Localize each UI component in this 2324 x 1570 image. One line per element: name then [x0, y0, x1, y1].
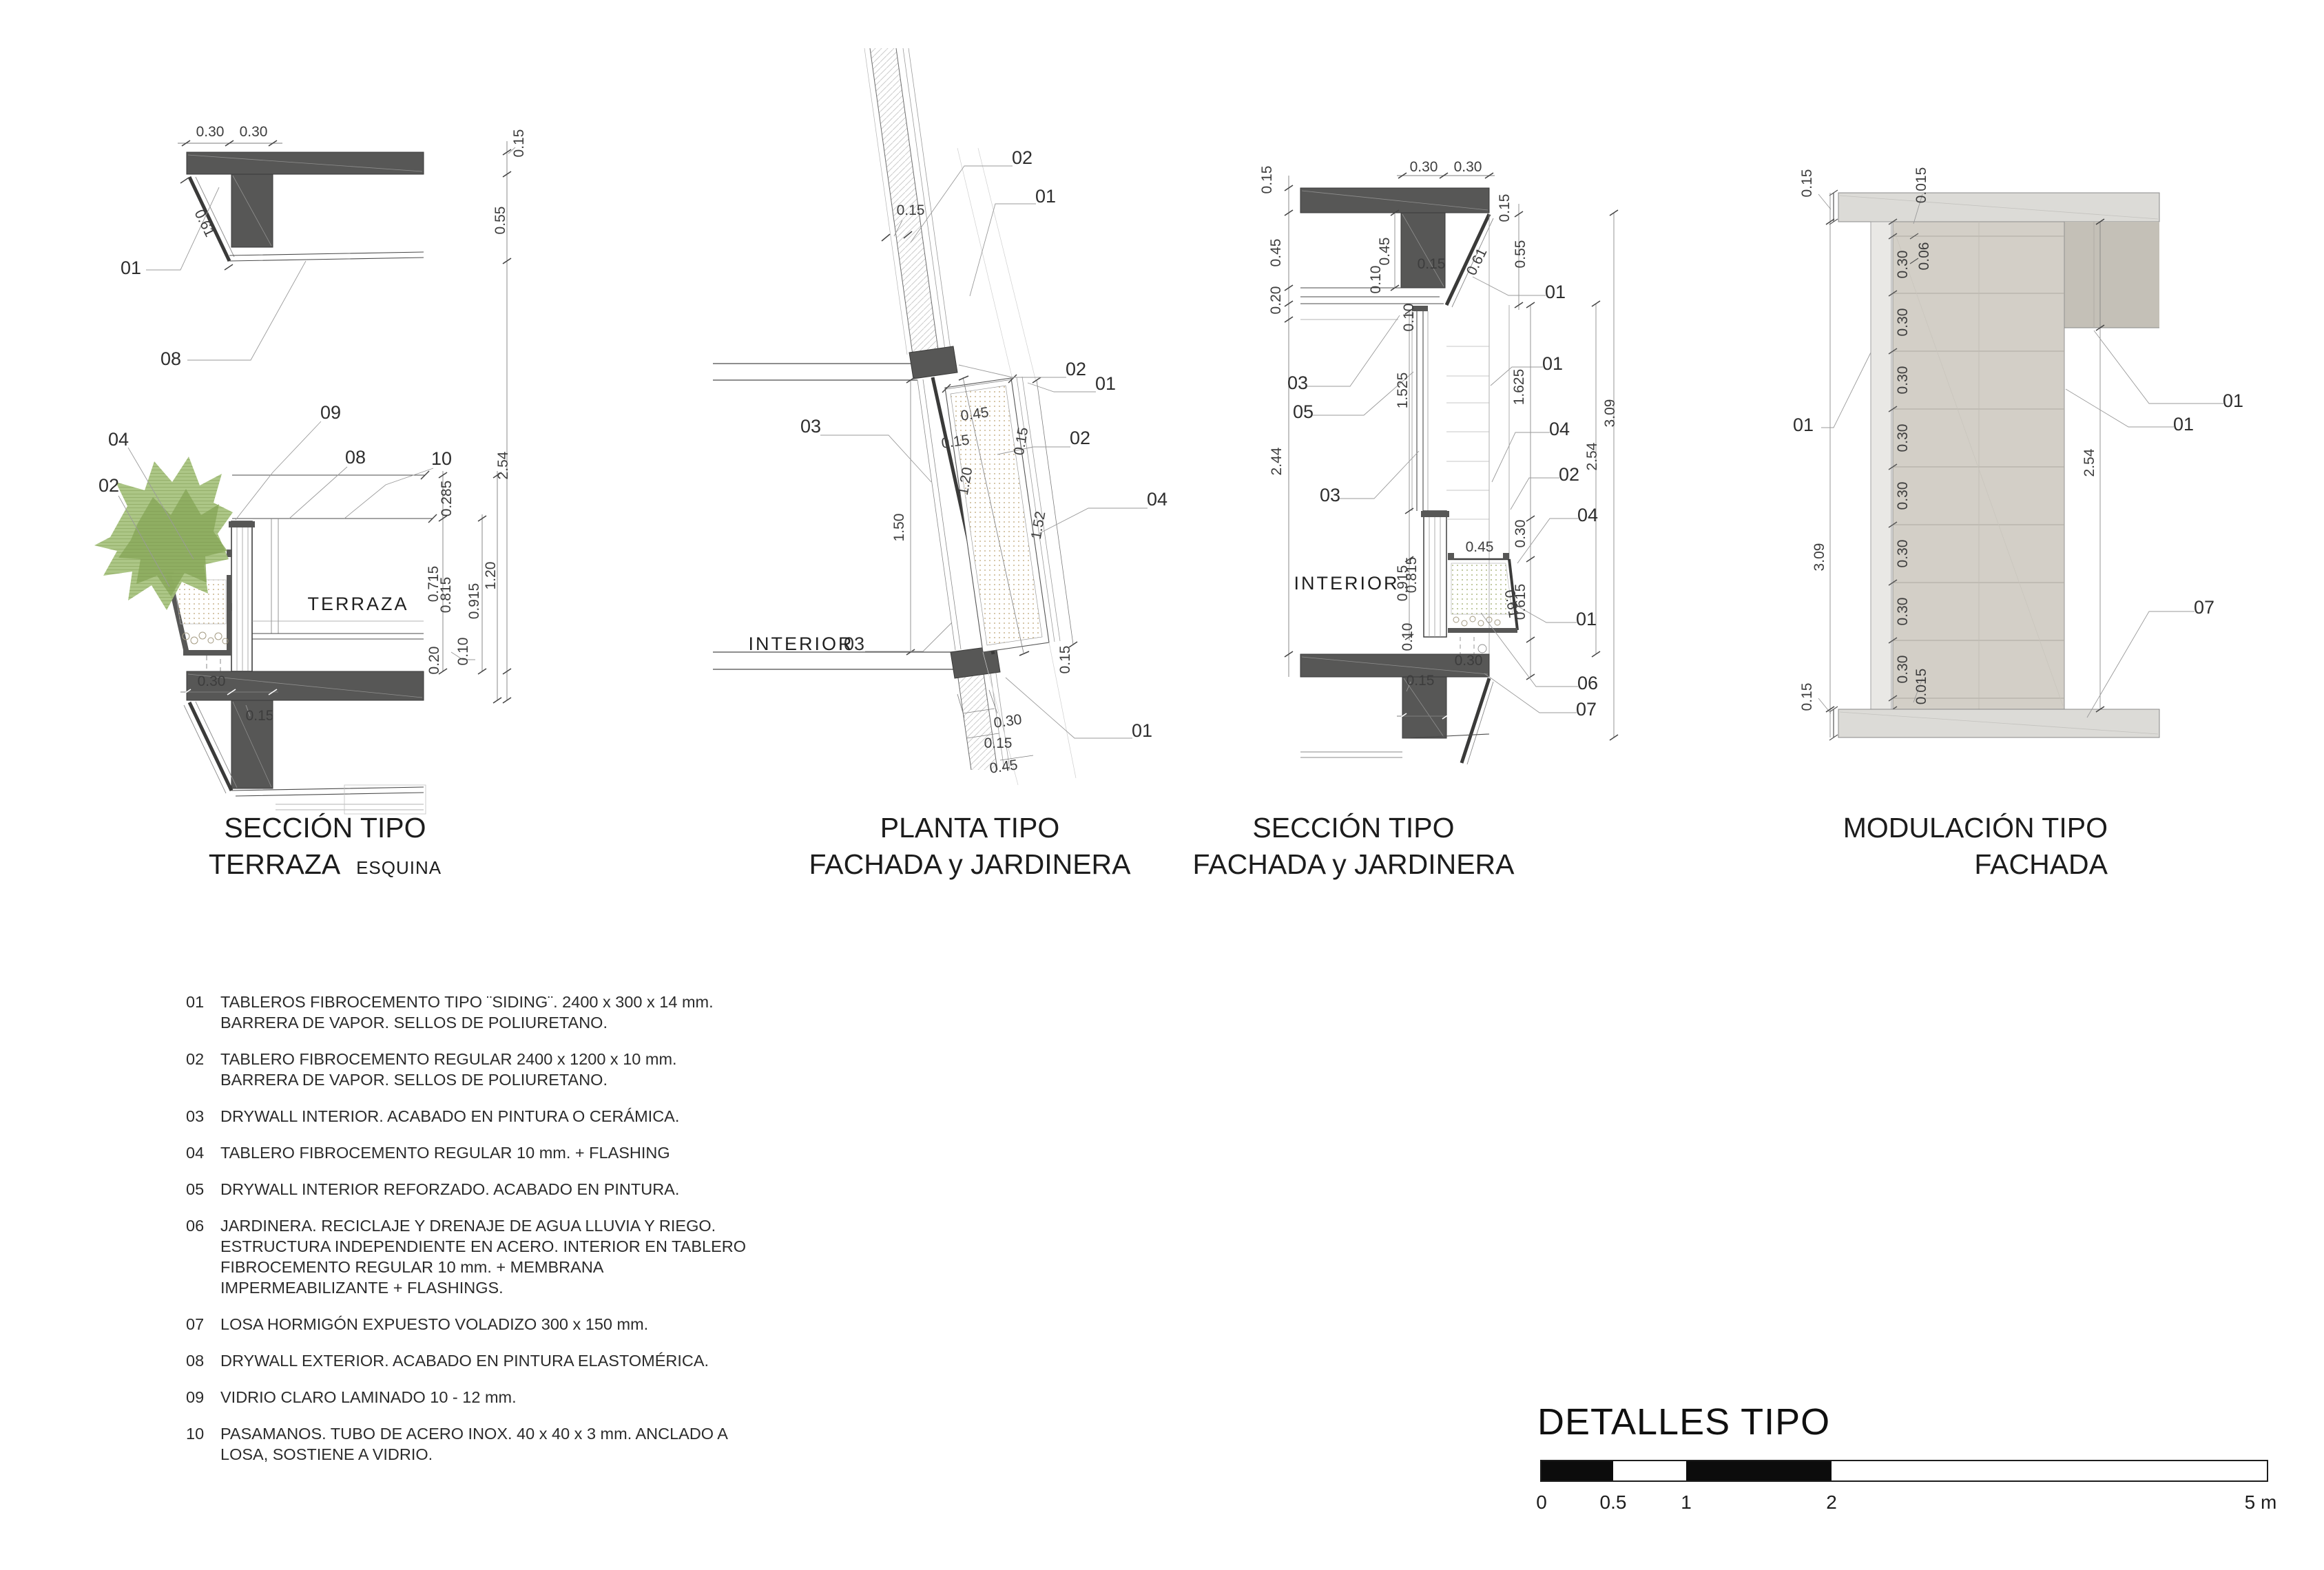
dim-label: 0.61: [1464, 246, 1491, 278]
note-number: 10: [186, 1423, 220, 1465]
dim-label: 0.015: [1913, 669, 1929, 705]
scale-tick: 1: [1681, 1491, 1692, 1514]
dim-label: 0.20: [1268, 286, 1284, 315]
dim-label: 0.45: [1377, 238, 1393, 266]
dim-label: 0.285: [439, 481, 455, 517]
scale-bar-segment: [1542, 1461, 1613, 1480]
scale-bar-labels: 0 0.5 1 2 5 m: [1540, 1491, 2312, 1519]
dim-label: 0.55: [492, 207, 508, 235]
dim-label: 0.615: [1513, 584, 1528, 620]
dim-label: 0.15: [984, 735, 1013, 751]
scale-tick: 5 m: [2245, 1491, 2277, 1514]
dim-label: 0.30: [1895, 366, 1911, 395]
callout-label: 01: [2173, 414, 2194, 435]
sheet-title: DETALLES TIPO: [1537, 1401, 1830, 1443]
note-row: 09VIDRIO CLARO LAMINADO 10 - 12 mm.: [186, 1387, 861, 1407]
dim-label: 0.15: [246, 708, 274, 724]
dim-label: 3.09: [1602, 399, 1618, 428]
note-row: 02TABLERO FIBROCEMENTO REGULAR 2400 x 12…: [186, 1049, 861, 1090]
scale-bar-segment: [1686, 1461, 1832, 1480]
callout-label: 09: [320, 402, 341, 423]
title-line1: MODULACIÓN TIPO: [1796, 810, 2108, 846]
callout-label: 01: [1035, 186, 1056, 207]
dim-label: 1.52: [1028, 510, 1049, 541]
title-line2: FACHADA: [1796, 846, 2108, 883]
callout-label: 08: [160, 348, 181, 369]
dim-label: 2.54: [1584, 442, 1600, 470]
note-text: DRYWALL INTERIOR. ACABADO EN PINTURA O C…: [220, 1106, 679, 1127]
callout-label: 07: [2194, 597, 2214, 618]
dim-label: 0.10: [1368, 266, 1384, 294]
dim-label: 0.30: [1454, 159, 1482, 175]
scale-tick: 2: [1826, 1491, 1837, 1514]
dim-label: 0.15: [897, 202, 925, 218]
note-text: LOSA HORMIGÓN EXPUESTO VOLADIZO 300 x 15…: [220, 1314, 648, 1334]
dim-label: 0.30: [1410, 159, 1438, 175]
note-row: 01TABLEROS FIBROCEMENTO TIPO ¨SIDING¨. 2…: [186, 992, 861, 1033]
dim-label: 0.015: [1913, 167, 1929, 204]
dim-label: 2.44: [1269, 447, 1285, 475]
dim-label: 2.54: [2082, 448, 2097, 477]
drawing-planta-fachada: [713, 48, 1148, 785]
note-text: DRYWALL EXTERIOR. ACABADO EN PINTURA ELA…: [220, 1350, 709, 1371]
scale-bar-segment: [1613, 1461, 1686, 1480]
dim-label: 0.15: [1418, 256, 1446, 272]
callout-label: 01: [1095, 373, 1116, 394]
scale-tick: 0: [1536, 1491, 1547, 1514]
room-label: INTERIOR: [748, 634, 853, 654]
title-line2: TERRAZA ESQUINA: [153, 846, 497, 883]
callout-label: 02: [1066, 359, 1086, 379]
dim-label: 0.30: [1455, 653, 1483, 669]
callout-label: 10: [431, 448, 452, 469]
dim-label: 0.10: [1401, 304, 1417, 332]
title-modulacion: MODULACIÓN TIPO FACHADA: [1796, 810, 2108, 883]
dim-label: 0.30: [196, 124, 225, 140]
dim-label: 0.10: [1400, 623, 1415, 651]
note-text: VIDRIO CLARO LAMINADO 10 - 12 mm.: [220, 1387, 517, 1407]
title-seccion-fachada: SECCIÓN TIPO FACHADA y JARDINERA: [1181, 810, 1526, 883]
title-line1: SECCIÓN TIPO: [1181, 810, 1526, 846]
note-number: 08: [186, 1350, 220, 1371]
scale-bar: [1540, 1460, 2268, 1482]
callout-label: 04: [108, 429, 129, 450]
dim-label: 1.50: [891, 514, 907, 542]
scale-tick: 0.5: [1600, 1491, 1627, 1514]
note-number: 07: [186, 1314, 220, 1334]
note-row: 08DRYWALL EXTERIOR. ACABADO EN PINTURA E…: [186, 1350, 861, 1371]
callout-label: 03: [1320, 485, 1340, 505]
dim-label: 0.30: [1895, 598, 1911, 626]
note-text: JARDINERA. RECICLAJE Y DRENAJE DE AGUA L…: [220, 1215, 746, 1298]
title-planta-fachada: PLANTA TIPO FACHADA y JARDINERA: [798, 810, 1142, 883]
room-label: TERRAZA: [307, 594, 408, 614]
callout-label: 02: [1559, 464, 1579, 485]
dim-label: 0.15: [1259, 166, 1275, 194]
notes-legend: 01TABLEROS FIBROCEMENTO TIPO ¨SIDING¨. 2…: [186, 992, 861, 1480]
note-text: TABLERO FIBROCEMENTO REGULAR 2400 x 1200…: [220, 1049, 677, 1090]
callout-label: 01: [1576, 609, 1597, 629]
drawing-seccion-terraza: [94, 140, 515, 814]
callout-label: 01: [1545, 282, 1566, 302]
dim-label: 0.30: [240, 124, 268, 140]
dim-label: 0.45: [1268, 239, 1284, 267]
drawing-modulacion-fachada: [1818, 190, 2223, 740]
callout-label: 02: [1070, 428, 1090, 448]
title-seccion-terraza: SECCIÓN TIPO TERRAZA ESQUINA: [153, 810, 497, 883]
callout-label: 03: [1287, 373, 1308, 393]
dim-label: 0.915: [466, 583, 482, 620]
dim-label: 0.45: [988, 757, 1019, 776]
callout-label: 01: [2223, 390, 2243, 411]
dim-label: 0.45: [1466, 539, 1494, 555]
dim-label: 3.09: [1812, 543, 1827, 572]
note-row: 06JARDINERA. RECICLAJE Y DRENAJE DE AGUA…: [186, 1215, 861, 1298]
dim-label: 0.15: [1407, 673, 1435, 689]
note-row: 05DRYWALL INTERIOR REFORZADO. ACABADO EN…: [186, 1179, 861, 1200]
title-line1: SECCIÓN TIPO: [153, 810, 497, 846]
dim-label: 0.815: [438, 577, 454, 614]
scale-bar-segment: [1832, 1461, 2267, 1480]
dim-label: 1.625: [1511, 369, 1527, 406]
sheet: { "sheet": { "kind": "architectural-deta…: [0, 0, 2324, 1570]
dim-label: 0.30: [1895, 251, 1911, 279]
title-line1: PLANTA TIPO: [798, 810, 1142, 846]
dim-label: 0.30: [1895, 424, 1911, 452]
dim-label: 0.55: [1513, 240, 1528, 269]
note-number: 09: [186, 1387, 220, 1407]
note-row: 03DRYWALL INTERIOR. ACABADO EN PINTURA O…: [186, 1106, 861, 1127]
dim-label: 0.30: [993, 711, 1023, 731]
note-row: 04TABLERO FIBROCEMENTO REGULAR 10 mm. + …: [186, 1142, 861, 1163]
dim-label: 0.06: [1916, 242, 1932, 271]
callout-label: 07: [1576, 699, 1597, 720]
callout-label: 02: [98, 475, 119, 496]
note-row: 10PASAMANOS. TUBO DE ACERO INOX. 40 x 40…: [186, 1423, 861, 1465]
note-number: 02: [186, 1049, 220, 1090]
note-text: TABLERO FIBROCEMENTO REGULAR 10 mm. + FL…: [220, 1142, 670, 1163]
callout-label: 04: [1577, 505, 1598, 525]
callout-label: 01: [1132, 720, 1152, 741]
callout-label: 05: [1293, 401, 1314, 422]
callout-label: 04: [1549, 419, 1570, 439]
title-line2: FACHADA y JARDINERA: [798, 846, 1142, 883]
note-number: 03: [186, 1106, 220, 1127]
title-line2-small: ESQUINA: [356, 857, 442, 878]
dim-label: 0.15: [1799, 169, 1815, 198]
callout-label: 01: [1793, 415, 1814, 435]
callout-label: 08: [345, 447, 366, 468]
dim-label: 0.15: [511, 129, 527, 158]
title-line2: FACHADA y JARDINERA: [1181, 846, 1526, 883]
dim-label: 0.30: [198, 673, 226, 689]
dim-label: 0.15: [1799, 683, 1815, 711]
dim-label: 0.30: [1895, 482, 1911, 510]
dim-label: 1.20: [483, 562, 499, 590]
dim-label: 0.20: [426, 647, 442, 675]
dim-label: 0.30: [1513, 520, 1528, 548]
room-label: INTERIOR: [1294, 573, 1399, 594]
dim-label: 2.54: [495, 451, 511, 479]
note-number: 06: [186, 1215, 220, 1298]
callout-label: 03: [800, 416, 821, 437]
dim-label: 0.30: [1895, 540, 1911, 568]
dim-label: 0.15: [1497, 194, 1513, 222]
note-row: 07LOSA HORMIGÓN EXPUESTO VOLADIZO 300 x …: [186, 1314, 861, 1334]
note-number: 01: [186, 992, 220, 1033]
dim-label: 1.525: [1395, 373, 1411, 409]
callout-label: 01: [1542, 353, 1563, 374]
note-number: 04: [186, 1142, 220, 1163]
callout-label: 02: [1012, 147, 1033, 168]
callout-label: 06: [1577, 673, 1598, 693]
note-number: 05: [186, 1179, 220, 1200]
note-text: PASAMANOS. TUBO DE ACERO INOX. 40 x 40 x…: [220, 1423, 728, 1465]
callout-label: 01: [121, 258, 141, 278]
dim-label: 0.10: [455, 638, 471, 666]
dim-label: 0.15: [1057, 646, 1073, 674]
note-text: TABLEROS FIBROCEMENTO TIPO ¨SIDING¨. 240…: [220, 992, 714, 1033]
dim-label: 0.61: [191, 207, 218, 240]
callout-label: 04: [1147, 489, 1168, 510]
dim-label: 0.30: [1895, 308, 1911, 337]
note-text: DRYWALL INTERIOR REFORZADO. ACABADO EN P…: [220, 1179, 679, 1200]
dim-label: 0.30: [1895, 656, 1911, 684]
